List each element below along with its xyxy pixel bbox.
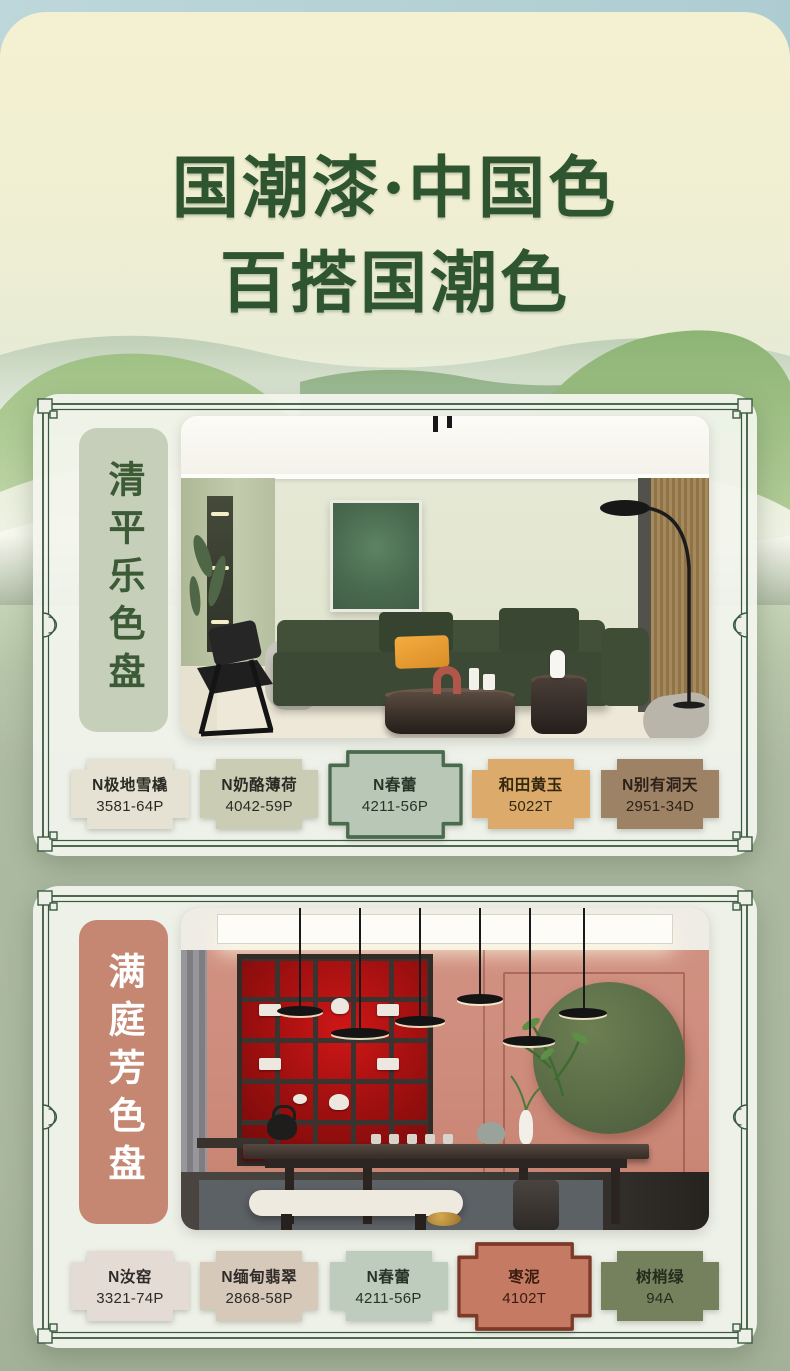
room-photo-tea-room: [181, 908, 709, 1230]
swatch-code: 4211-56P: [355, 1290, 421, 1307]
swatch-code: 2868-58P: [226, 1290, 293, 1307]
wood-stool: [513, 1180, 559, 1230]
swatch-row: N极地雪橇 3581-64P N奶酪薄荷 4042-59P N春蕾 4211-5…: [71, 746, 719, 842]
swatch-code: 4211-56P: [362, 798, 428, 815]
swatch-name: N汝窑: [108, 1265, 152, 1287]
pendant-light: [479, 908, 481, 994]
color-swatch-featured: N春蕾 4211-56P: [330, 752, 461, 837]
poster-title-line2: 百搭国潮色: [0, 235, 790, 330]
color-swatch: 和田黄玉 5022T: [472, 759, 590, 829]
palette-title-plaque: 清平乐色盘: [79, 428, 168, 732]
pendant-light: [529, 908, 531, 1036]
teapot: [477, 1122, 505, 1144]
swatch-code: 3581-64P: [96, 798, 163, 815]
tea-cup: [371, 1134, 381, 1144]
tea-cup: [425, 1134, 435, 1144]
color-swatch: N汝窑 3321-74P: [71, 1251, 189, 1321]
color-swatch: N奶酪薄荷 4042-59P: [200, 759, 318, 829]
swatch-name: N春蕾: [373, 773, 417, 795]
iron-kettle: [267, 1114, 297, 1140]
black-armchair: [197, 619, 273, 734]
tea-cup: [389, 1134, 399, 1144]
swatch-name: N缅甸翡翠: [221, 1265, 297, 1287]
palette-card-qingpingle: 清平乐色盘: [33, 394, 757, 856]
swatch-code: 2951-34D: [626, 798, 694, 815]
tea-cup: [443, 1134, 453, 1144]
pendant-light: [299, 908, 301, 1006]
swatch-name: 枣泥: [508, 1265, 540, 1287]
swatch-code: 4102T: [502, 1290, 546, 1307]
palette-card-mantingfang: 满庭芳色盘: [33, 886, 757, 1348]
white-bench: [249, 1190, 463, 1216]
color-swatch: N春蕾 4211-56P: [330, 1251, 448, 1321]
poster-title: 国潮漆·中国色 百搭国潮色: [0, 140, 790, 330]
color-swatch: N别有洞天 2951-34D: [601, 759, 719, 829]
poster: 国潮漆·中国色 百搭国潮色 清平乐色盘: [0, 0, 790, 1371]
swatch-name: N奶酪薄荷: [221, 773, 297, 795]
pendant-light: [359, 908, 361, 1028]
swatch-name: N春蕾: [367, 1265, 411, 1287]
palette-title: 清平乐色盘: [105, 460, 142, 700]
swatch-name: 树梢绿: [636, 1265, 684, 1287]
pendant-light: [419, 908, 421, 1016]
swatch-name: N极地雪橇: [92, 773, 168, 795]
color-swatch: N缅甸翡翠 2868-58P: [200, 1251, 318, 1321]
color-swatch-featured: 枣泥 4102T: [459, 1244, 590, 1329]
white-vase: [519, 1110, 533, 1144]
plant: [188, 533, 229, 616]
palette-title-plaque: 满庭芳色盘: [79, 920, 168, 1224]
paper-panel: 国潮漆·中国色 百搭国潮色 清平乐色盘: [0, 12, 790, 1371]
tea-table: [243, 1144, 649, 1159]
pendant-light: [583, 908, 585, 1008]
swatch-name: 和田黄玉: [499, 773, 563, 795]
palette-title: 满庭芳色盘: [105, 952, 142, 1192]
swatch-code: 94A: [646, 1290, 674, 1307]
swatch-name: N别有洞天: [622, 773, 698, 795]
gold-decor: [427, 1212, 461, 1226]
color-swatch: N极地雪橇 3581-64P: [71, 759, 189, 829]
swatch-row: N汝窑 3321-74P N缅甸翡翠 2868-58P N春蕾 4211-56P…: [71, 1238, 719, 1334]
poster-title-line1: 国潮漆·中国色: [0, 140, 790, 235]
tea-cup: [407, 1134, 417, 1144]
swatch-code: 4042-59P: [226, 798, 293, 815]
floor-lamp: [181, 416, 709, 738]
room-photo-living-room: [181, 416, 709, 738]
swatch-code: 3321-74P: [96, 1290, 163, 1307]
swatch-code: 5022T: [509, 798, 553, 815]
color-swatch: 树梢绿 94A: [601, 1251, 719, 1321]
